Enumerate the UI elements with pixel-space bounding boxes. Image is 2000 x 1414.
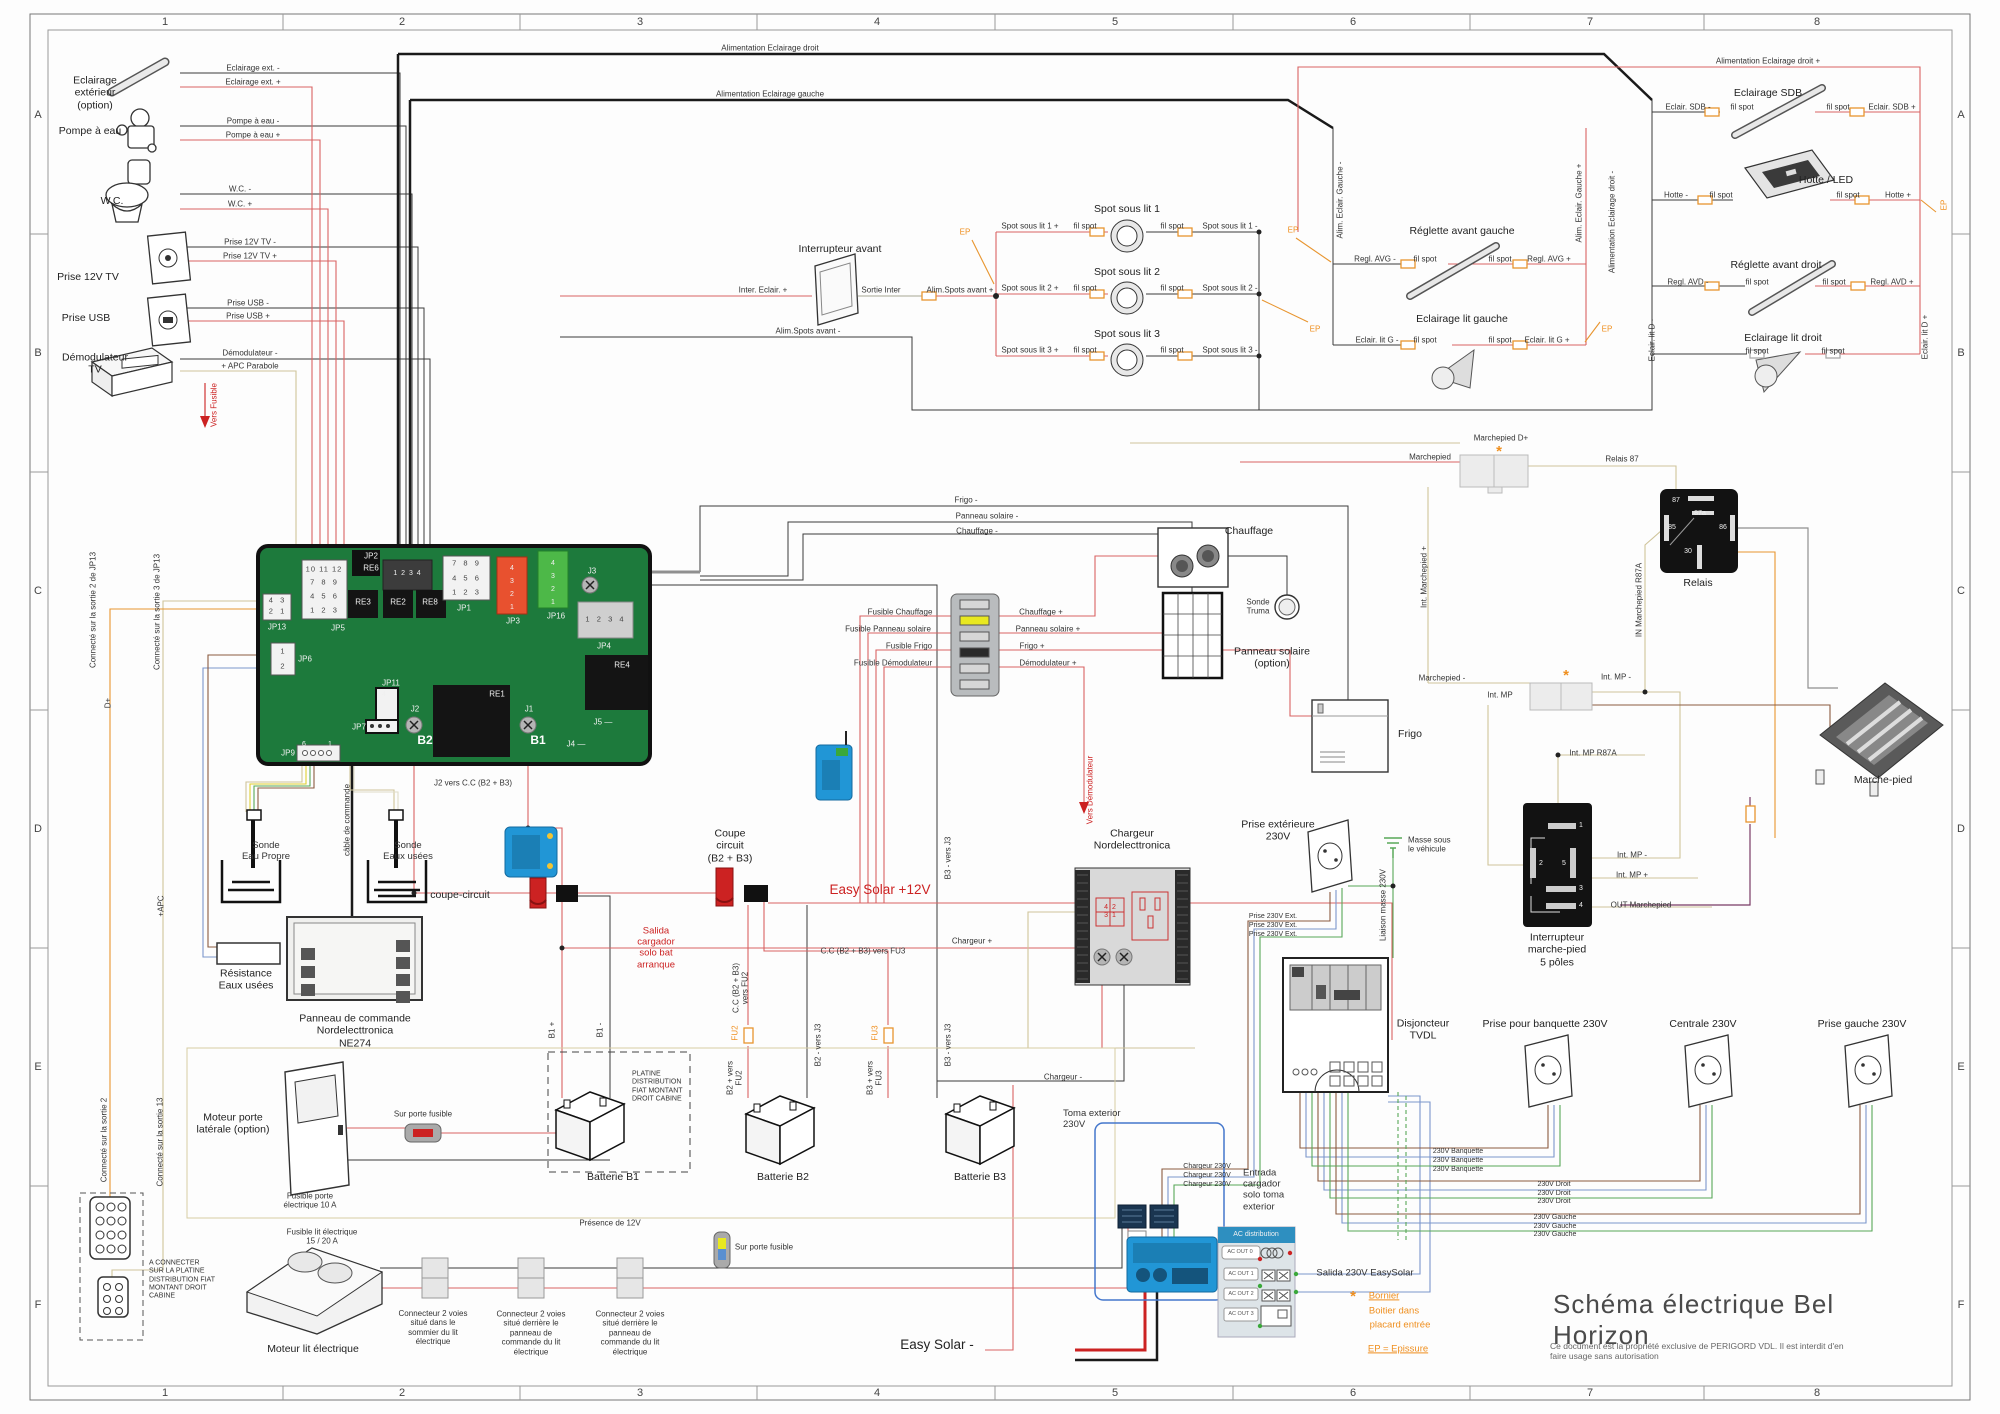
grid-row-right-C: C xyxy=(1957,585,1965,597)
bed-fuse-icon xyxy=(714,1232,730,1268)
wires-purple xyxy=(1620,797,1750,905)
spot-lamp-icons xyxy=(1111,220,1143,376)
sheet-copyright-note: Ce document est la propriété exclusive d… xyxy=(1550,1341,1850,1361)
control-panel-icon xyxy=(287,917,422,1003)
grid-row-right-D: D xyxy=(1957,823,1965,835)
truma-probe-icon xyxy=(1275,595,1299,619)
grid-col-top-6: 6 xyxy=(1350,16,1356,28)
water-pump-icon xyxy=(117,109,156,152)
battery-b2-icon xyxy=(746,1096,814,1164)
grid-row-left-F: F xyxy=(35,1299,42,1311)
socket-gauche-icon xyxy=(1845,1035,1892,1107)
hotte-icon xyxy=(1745,150,1834,198)
ac-distribution-panel xyxy=(1218,1227,1298,1337)
b2b3-cutoff-icon xyxy=(716,868,768,906)
lit-gauche-lamp-icon xyxy=(1432,350,1474,389)
socket-banquette-icon xyxy=(1525,1035,1572,1107)
fresh-water-tank-icon xyxy=(222,810,280,902)
grid-col-top-3: 3 xyxy=(637,16,643,28)
grid-row-left-A: A xyxy=(34,109,41,121)
grid-col-bottom-2: 2 xyxy=(399,1387,405,1399)
grid-row-left-D: D xyxy=(34,823,42,835)
step-icon xyxy=(1816,683,1943,796)
breaker-tvdl-icon xyxy=(1283,958,1388,1092)
door-fuse-icon xyxy=(405,1124,441,1142)
eclairage-sdb-icon xyxy=(1735,88,1822,135)
grid-row-left-E: E xyxy=(34,1061,41,1073)
grid-row-left-C: C xyxy=(34,585,42,597)
victron-monitor-icon xyxy=(816,731,852,800)
easysolar-unit-icon xyxy=(1118,1205,1217,1292)
grid-row-right-F: F xyxy=(1958,1299,1965,1311)
grid-col-top-5: 5 xyxy=(1112,16,1118,28)
grid-col-top-7: 7 xyxy=(1587,16,1593,28)
schematic-page: Eclairage extérieur (option)Pompe à eauW… xyxy=(0,0,2000,1414)
waste-water-tank-icon xyxy=(368,810,426,902)
grid-col-bottom-8: 8 xyxy=(1814,1387,1820,1399)
grid-row-right-E: E xyxy=(1957,1061,1964,1073)
charger-icon xyxy=(1075,868,1190,985)
grid-col-bottom-3: 3 xyxy=(637,1387,643,1399)
ground-symbol-icon xyxy=(1384,838,1402,858)
battery-b1-icon xyxy=(556,1092,624,1160)
marchepied-connector-icons xyxy=(1460,455,1592,710)
bed-connector-icons xyxy=(422,1258,643,1298)
tv-socket-icon xyxy=(148,232,191,284)
tv-demodulator-icon xyxy=(92,348,172,396)
waste-resistor-icon xyxy=(217,943,280,964)
side-door-icon xyxy=(285,1062,349,1195)
grid-col-bottom-6: 6 xyxy=(1350,1387,1356,1399)
solar-panel-icon xyxy=(1163,593,1222,678)
grid-row-right-A: A xyxy=(1957,109,1964,121)
relay-icon xyxy=(1660,489,1738,573)
grid-col-bottom-7: 7 xyxy=(1587,1387,1593,1399)
grid-col-top-8: 8 xyxy=(1814,16,1820,28)
front-switch-icon xyxy=(815,254,858,325)
exterior-socket-icon xyxy=(1308,820,1352,892)
grid-col-bottom-1: 1 xyxy=(162,1387,168,1399)
grid-col-bottom-4: 4 xyxy=(874,1387,880,1399)
reglette-avant-droit-icon xyxy=(1752,264,1832,312)
control-board xyxy=(258,546,650,764)
wires-gray xyxy=(648,296,1838,688)
step-switch-icon xyxy=(1523,803,1592,927)
fridge-icon xyxy=(1312,700,1388,772)
grid-col-top-1: 1 xyxy=(162,16,168,28)
heater-icon xyxy=(1158,528,1228,587)
grid-col-top-4: 4 xyxy=(874,16,880,28)
socket-centrale-icon xyxy=(1685,1035,1732,1107)
schematic-canvas xyxy=(0,0,2000,1414)
victron-shunt-icon xyxy=(505,827,557,877)
toilet-icon xyxy=(106,160,150,222)
bed-icon xyxy=(247,1248,382,1334)
grid-row-right-B: B xyxy=(1957,347,1964,359)
wires-sonde xyxy=(250,762,314,812)
grid-row-left-B: B xyxy=(34,347,41,359)
usb-socket-icon xyxy=(148,294,191,346)
grid-col-bottom-5: 5 xyxy=(1112,1387,1118,1399)
fuse-block xyxy=(951,594,999,696)
grid-col-top-2: 2 xyxy=(399,16,405,28)
fiat-connector-icons xyxy=(80,1193,143,1340)
battery-b3-icon xyxy=(946,1096,1014,1164)
strip-light-icon xyxy=(112,62,165,92)
reglette-avant-gauche-icon xyxy=(1410,246,1496,296)
